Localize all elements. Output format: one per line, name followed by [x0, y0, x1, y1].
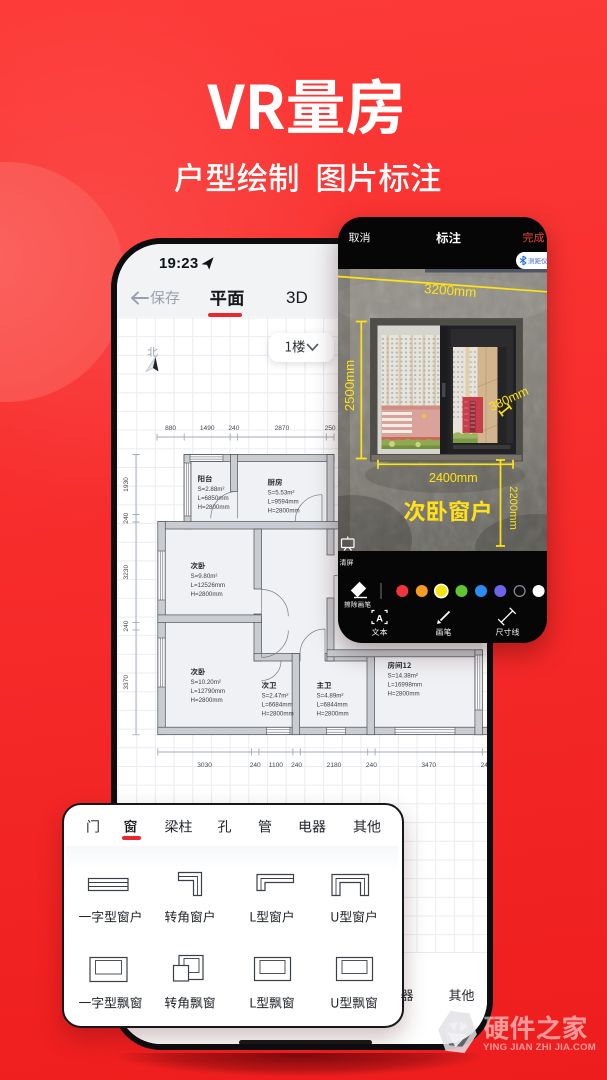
svg-text:L=9594mm: L=9594mm: [268, 499, 299, 506]
svg-text:3030: 3030: [197, 762, 212, 769]
svg-text:2870: 2870: [275, 425, 290, 432]
svg-text:L=6850mm: L=6850mm: [198, 495, 229, 502]
svg-text:3230: 3230: [123, 565, 130, 580]
svg-text:240: 240: [123, 620, 130, 631]
svg-text:240: 240: [123, 512, 130, 523]
svg-text:3370: 3370: [123, 675, 130, 690]
svg-text:3470: 3470: [421, 762, 436, 769]
svg-text:H=2800mm: H=2800mm: [262, 711, 294, 718]
svg-text:H=2800mm: H=2800mm: [317, 711, 349, 718]
svg-text:1490: 1490: [200, 425, 215, 432]
svg-text:240: 240: [250, 762, 261, 769]
svg-text:S=9.80m²: S=9.80m²: [191, 573, 218, 580]
svg-text:880: 880: [165, 425, 176, 432]
svg-text:1100: 1100: [269, 762, 284, 769]
svg-text:1930: 1930: [123, 477, 130, 492]
svg-text:S=2.88m²: S=2.88m²: [198, 486, 225, 493]
svg-text:S=10.20m²: S=10.20m²: [191, 679, 221, 686]
svg-text:250: 250: [325, 425, 336, 432]
svg-text:A: A: [376, 614, 383, 625]
svg-text:H=2800mm: H=2800mm: [191, 697, 223, 704]
svg-text:L=6844mm: L=6844mm: [317, 702, 348, 709]
svg-text:2180: 2180: [327, 762, 342, 769]
svg-text:240: 240: [291, 762, 302, 769]
svg-text:L=6684mm: L=6684mm: [262, 702, 293, 709]
svg-text:H=2800mm: H=2800mm: [268, 508, 300, 515]
svg-text:S=5.53m²: S=5.53m²: [268, 490, 295, 497]
svg-text:240: 240: [481, 762, 487, 769]
svg-text:H=2800mm: H=2800mm: [198, 504, 230, 511]
svg-text:H=2800mm: H=2800mm: [191, 591, 223, 598]
svg-text:240: 240: [228, 425, 239, 432]
svg-text:S=2.47m²: S=2.47m²: [262, 693, 289, 700]
svg-text:L=12790mm: L=12790mm: [191, 688, 226, 695]
svg-text:240: 240: [366, 762, 377, 769]
svg-text:L=12526mm: L=12526mm: [191, 582, 226, 589]
